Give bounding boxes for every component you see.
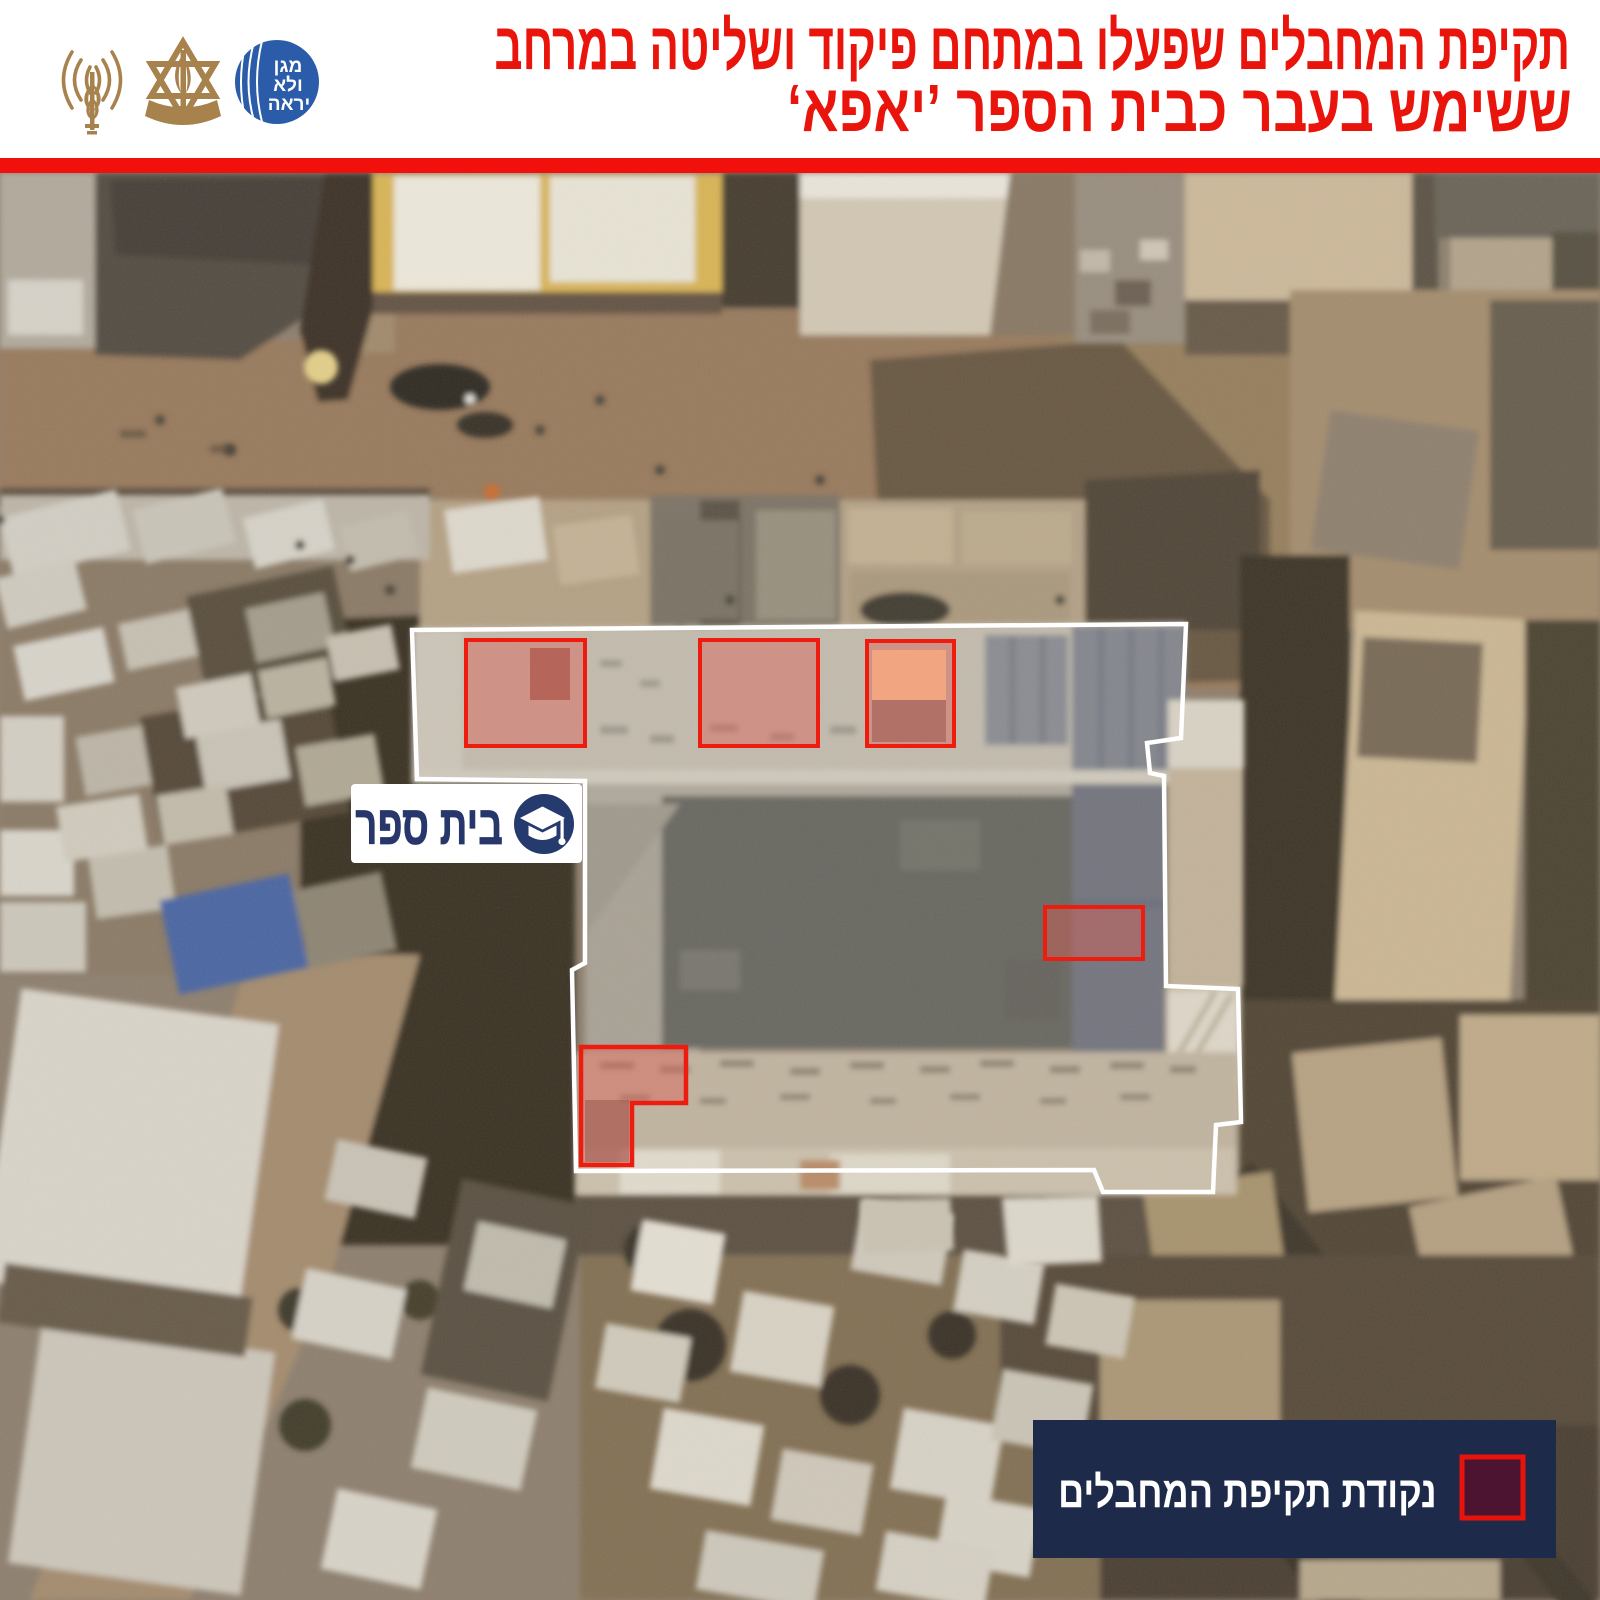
svg-text:יראה: יראה bbox=[268, 94, 310, 115]
svg-text:מגן: מגן bbox=[274, 56, 303, 77]
svg-text:ולא: ולא bbox=[273, 75, 303, 96]
